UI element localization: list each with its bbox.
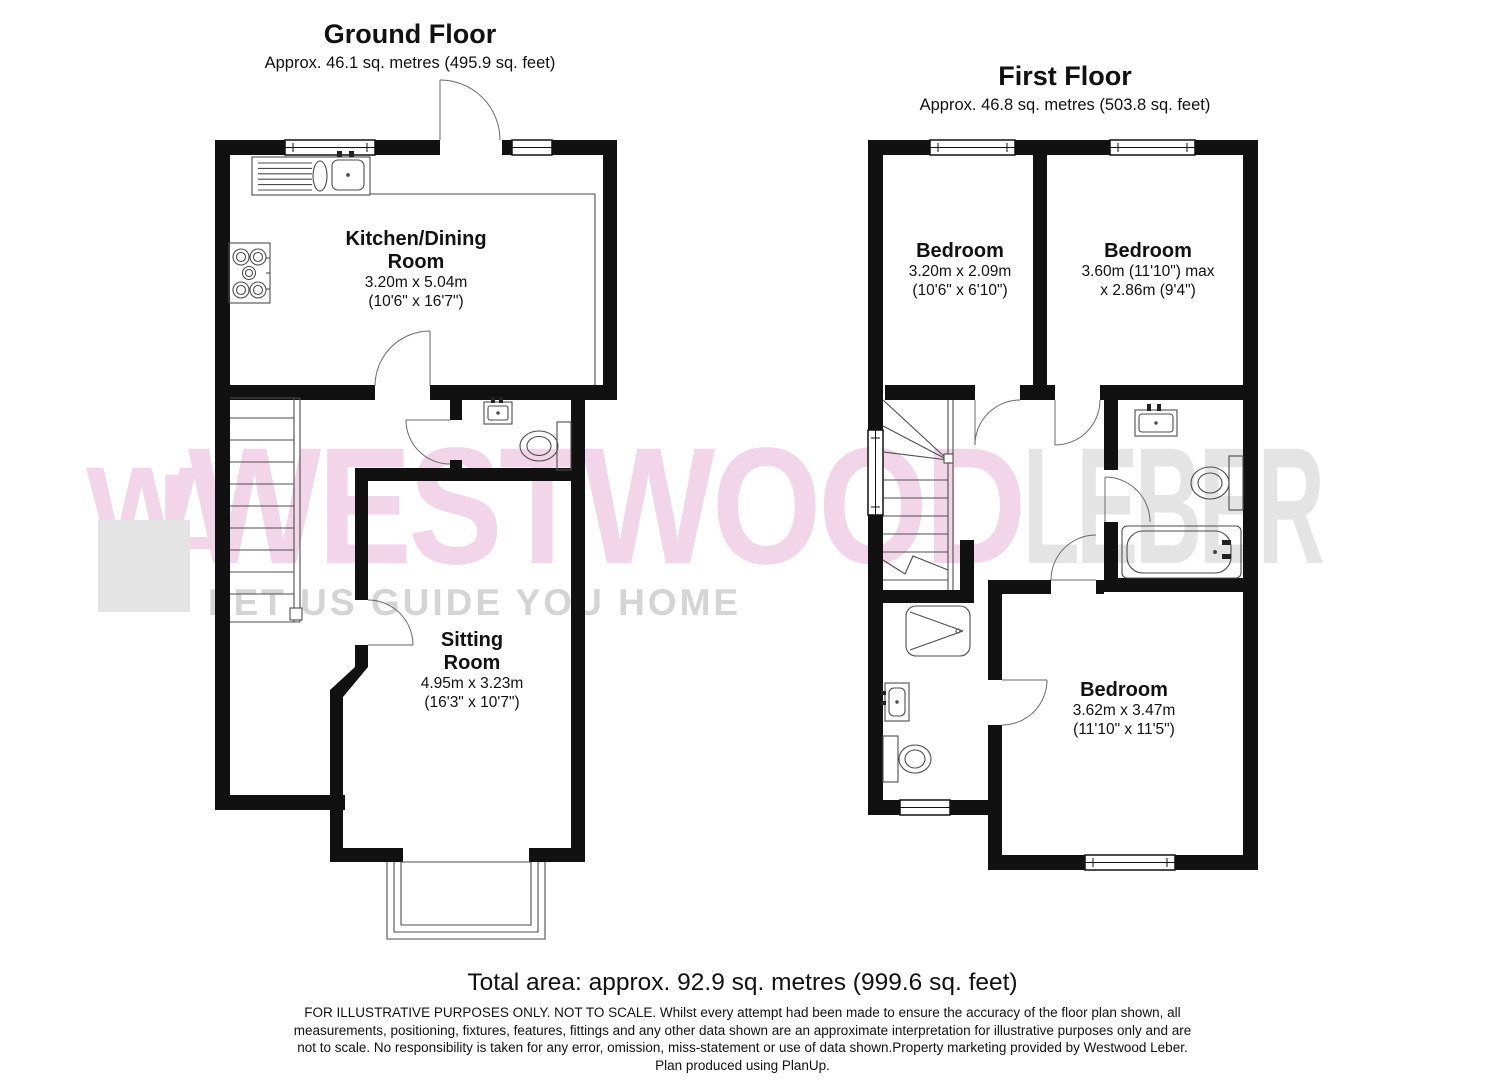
bedroom-door-arc-icon — [1055, 400, 1100, 445]
room-dims-imperial: (10'6" x 6'10") — [909, 282, 1012, 301]
room-name: Sitting — [421, 629, 524, 652]
room-label-sitting: Sitting Room 4.95m x 3.23m (16'3" x 10'7… — [421, 629, 524, 713]
room-name: Room — [421, 652, 524, 675]
bathroom-door-arc-icon — [1105, 477, 1150, 522]
disclaimer-line: Plan produced using PlanUp. — [0, 1057, 1485, 1075]
first-floor-plan — [860, 120, 1270, 880]
window-icon — [930, 140, 1015, 155]
room-dims-imperial: (11'10" x 11'5") — [1073, 721, 1176, 740]
room-name: Kitchen/Dining — [345, 228, 486, 251]
window-icon — [1085, 855, 1175, 870]
room-dims-metric: 3.20m x 5.04m — [345, 274, 486, 293]
wc-door-arc-icon — [406, 420, 450, 464]
bathroom-toilet-icon — [1191, 456, 1243, 510]
room-dims-metric: 4.95m x 3.23m — [421, 675, 524, 694]
first-floor-subtitle: Approx. 46.8 sq. metres (503.8 sq. feet) — [860, 96, 1270, 115]
room-dims-metric: 3.20m x 2.09m — [909, 263, 1012, 282]
shower-icon — [906, 606, 970, 656]
bathtub-icon — [1122, 526, 1241, 578]
bathroom-sink-icon — [1135, 404, 1177, 436]
wc-sink-icon — [484, 397, 512, 424]
wc-toilet-icon — [520, 422, 571, 470]
room-name: Bedroom — [1081, 240, 1214, 263]
room-name: Bedroom — [1073, 679, 1176, 702]
ground-floor-subtitle: Approx. 46.1 sq. metres (495.9 sq. feet) — [195, 54, 625, 73]
room-label-bedroom-1: Bedroom 3.20m x 2.09m (10'6" x 6'10") — [909, 240, 1012, 301]
front-door-arc-icon — [440, 80, 500, 140]
ensuite-toilet-icon — [883, 736, 931, 782]
first-floor-title: First Floor — [860, 62, 1270, 92]
first-floor-header: First Floor Approx. 46.8 sq. metres (503… — [860, 62, 1270, 115]
brand-logo-block — [98, 520, 190, 612]
window-icon — [1110, 140, 1195, 155]
ground-floor-title: Ground Floor — [195, 20, 625, 50]
kitchen-door-arc-icon — [375, 331, 430, 386]
disclaimer-line: not to scale. No responsibility is taken… — [0, 1039, 1485, 1057]
ground-floor-plan — [200, 70, 630, 950]
room-name: Bedroom — [909, 240, 1012, 263]
window-icon — [512, 140, 552, 155]
hob-icon — [229, 243, 270, 303]
stairs-icon — [883, 400, 953, 590]
disclaimer-text: FOR ILLUSTRATIVE PURPOSES ONLY. NOT TO S… — [0, 1004, 1485, 1074]
stairs-icon — [230, 398, 302, 622]
bedroom-door-arc-icon — [975, 400, 1020, 445]
window-icon — [900, 800, 950, 815]
sitting-room-door-arc-icon — [368, 600, 413, 645]
bedroom-door-arc-icon — [1051, 535, 1096, 580]
room-dims-line2: x 2.86m (9'4") — [1081, 282, 1214, 301]
ground-floor-header: Ground Floor Approx. 46.1 sq. metres (49… — [195, 20, 625, 73]
room-dims-imperial: (10'6" x 16'7") — [345, 293, 486, 312]
room-label-kitchen: Kitchen/Dining Room 3.20m x 5.04m (10'6"… — [345, 228, 486, 312]
window-icon — [868, 430, 883, 515]
room-dims-imperial: (16'3" x 10'7") — [421, 694, 524, 713]
bay-window-icon — [387, 862, 545, 939]
room-name: Room — [345, 251, 486, 274]
total-area-text: Total area: approx. 92.9 sq. metres (999… — [0, 969, 1485, 997]
ensuite-sink-icon — [881, 683, 909, 721]
disclaimer-line: measurements, positioning, fixtures, fea… — [0, 1022, 1485, 1040]
room-label-bedroom-3: Bedroom 3.62m x 3.47m (11'10" x 11'5") — [1073, 679, 1176, 740]
ensuite-door-arc-icon — [1002, 680, 1047, 725]
room-dims-metric: 3.62m x 3.47m — [1073, 702, 1176, 721]
room-dims-line1: 3.60m (11'10") max — [1081, 263, 1214, 282]
kitchen-sink-icon — [252, 151, 370, 195]
room-label-bedroom-2: Bedroom 3.60m (11'10") max x 2.86m (9'4"… — [1081, 240, 1214, 301]
window-icon — [285, 140, 375, 155]
disclaimer-line: FOR ILLUSTRATIVE PURPOSES ONLY. NOT TO S… — [0, 1004, 1485, 1022]
